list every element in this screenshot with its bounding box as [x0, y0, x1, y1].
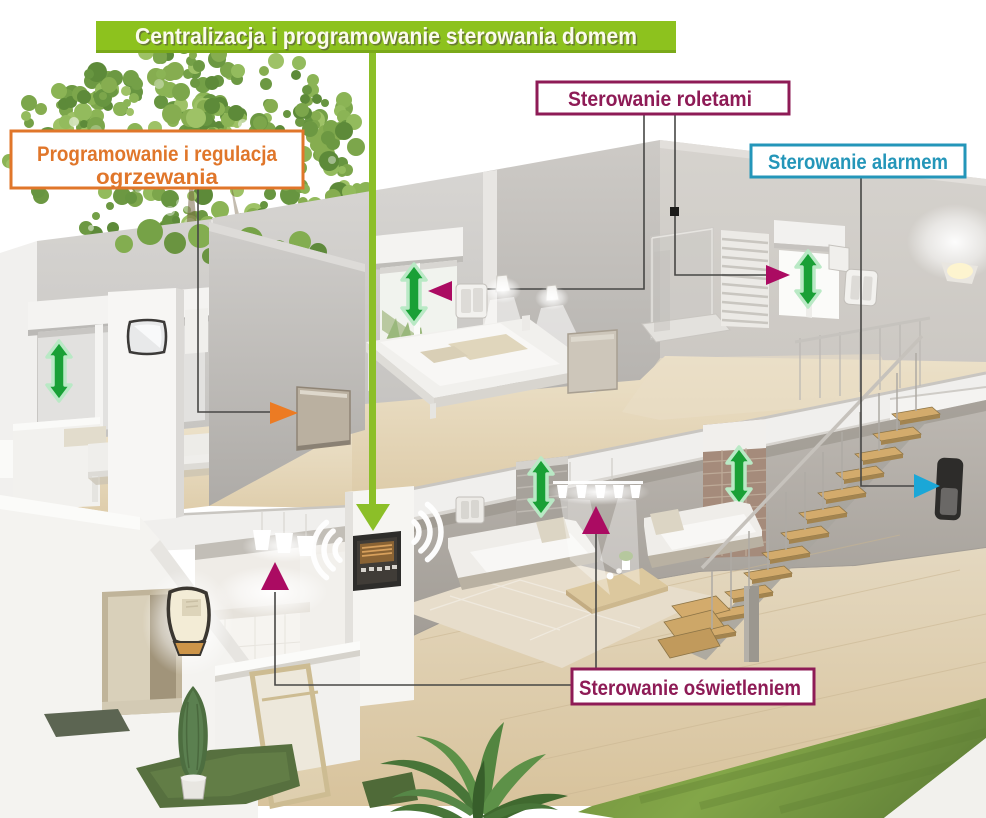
- svg-text:Centralizacja i programowanie: Centralizacja i programowanie sterowania…: [135, 23, 637, 49]
- svg-text:Sterowanie alarmem: Sterowanie alarmem: [768, 151, 948, 174]
- svg-text:ogrzewania: ogrzewania: [96, 166, 218, 189]
- svg-text:Sterowanie roletami: Sterowanie roletami: [568, 88, 752, 111]
- svg-text:Programowanie i regulacja: Programowanie i regulacja: [37, 143, 277, 166]
- svg-text:Sterowanie oświetleniem: Sterowanie oświetleniem: [579, 677, 801, 700]
